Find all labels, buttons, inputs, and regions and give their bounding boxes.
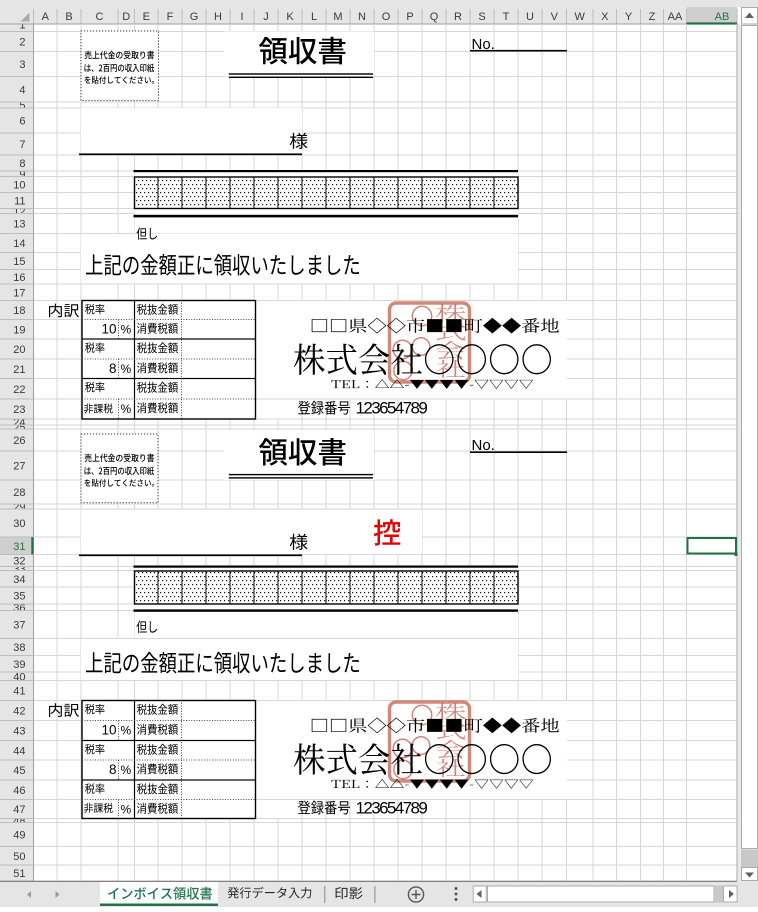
svg-text:10: 10 bbox=[101, 322, 116, 337]
svg-text:34: 34 bbox=[13, 574, 25, 586]
svg-text:%: % bbox=[121, 402, 132, 416]
svg-text:Y: Y bbox=[625, 11, 633, 23]
svg-text:U: U bbox=[526, 11, 534, 23]
svg-text:N: N bbox=[358, 11, 366, 23]
svg-text:50: 50 bbox=[13, 851, 25, 863]
svg-text:15: 15 bbox=[13, 256, 25, 268]
svg-text:O: O bbox=[382, 11, 391, 23]
svg-text:14: 14 bbox=[13, 238, 25, 250]
svg-text:30: 30 bbox=[13, 518, 25, 530]
svg-text:39: 39 bbox=[13, 659, 25, 671]
svg-text:19: 19 bbox=[13, 324, 25, 336]
svg-text:A: A bbox=[42, 11, 50, 23]
svg-text:%: % bbox=[121, 362, 132, 376]
svg-text:4: 4 bbox=[19, 84, 25, 96]
svg-text:AB: AB bbox=[715, 11, 730, 23]
svg-text:8: 8 bbox=[109, 762, 117, 777]
svg-text:42: 42 bbox=[13, 706, 25, 718]
svg-text:13: 13 bbox=[13, 219, 25, 231]
svg-text:Z: Z bbox=[649, 11, 656, 23]
svg-text:3: 3 bbox=[19, 59, 25, 71]
svg-text:8: 8 bbox=[109, 361, 117, 376]
svg-text:J: J bbox=[263, 11, 269, 23]
svg-text:31: 31 bbox=[13, 541, 25, 553]
svg-text:37: 37 bbox=[13, 620, 25, 632]
svg-text:43: 43 bbox=[13, 726, 25, 738]
svg-text:T: T bbox=[503, 11, 510, 23]
svg-text:22: 22 bbox=[13, 384, 25, 396]
svg-text:46: 46 bbox=[13, 785, 25, 797]
svg-text:49: 49 bbox=[13, 830, 25, 842]
svg-text:10: 10 bbox=[13, 180, 25, 192]
svg-text:17: 17 bbox=[13, 287, 25, 299]
svg-text:%: % bbox=[121, 803, 132, 817]
svg-text:2: 2 bbox=[19, 37, 25, 49]
svg-text:21: 21 bbox=[13, 364, 25, 376]
svg-text:6: 6 bbox=[19, 116, 25, 128]
svg-text:123654789: 123654789 bbox=[356, 399, 428, 418]
svg-text:41: 41 bbox=[13, 686, 25, 698]
svg-text:%: % bbox=[121, 763, 132, 777]
svg-text:R: R bbox=[454, 11, 462, 23]
svg-text:27: 27 bbox=[13, 461, 25, 473]
svg-text:V: V bbox=[551, 11, 559, 23]
svg-text:45: 45 bbox=[13, 765, 25, 777]
svg-text:28: 28 bbox=[13, 487, 25, 499]
svg-text:K: K bbox=[286, 11, 294, 23]
svg-text:26: 26 bbox=[13, 435, 25, 447]
svg-text:B: B bbox=[65, 11, 72, 23]
svg-text:X: X bbox=[601, 11, 609, 23]
svg-text:%: % bbox=[121, 724, 132, 738]
svg-text:H: H bbox=[214, 11, 222, 23]
svg-text:18: 18 bbox=[13, 305, 25, 317]
svg-text:E: E bbox=[143, 11, 150, 23]
svg-text:W: W bbox=[575, 11, 586, 23]
svg-text:123654789: 123654789 bbox=[356, 798, 428, 817]
svg-text:D: D bbox=[122, 11, 130, 23]
svg-text:I: I bbox=[240, 11, 243, 23]
svg-text:23: 23 bbox=[13, 404, 25, 416]
svg-text:35: 35 bbox=[13, 591, 25, 603]
svg-text:AA: AA bbox=[668, 11, 683, 23]
svg-text:%: % bbox=[121, 323, 132, 337]
svg-text:L: L bbox=[311, 11, 317, 23]
svg-text:8: 8 bbox=[19, 158, 25, 170]
svg-text:7: 7 bbox=[19, 139, 25, 151]
svg-text:F: F bbox=[167, 11, 174, 23]
svg-text:M: M bbox=[333, 11, 342, 23]
svg-text:Q: Q bbox=[430, 11, 439, 23]
svg-text:51: 51 bbox=[13, 868, 25, 880]
svg-text:16: 16 bbox=[13, 272, 25, 284]
svg-text:47: 47 bbox=[13, 804, 25, 816]
svg-text:S: S bbox=[478, 11, 485, 23]
svg-text:P: P bbox=[406, 11, 413, 23]
svg-text:C: C bbox=[96, 11, 104, 23]
svg-text:10: 10 bbox=[101, 723, 116, 738]
svg-text:32: 32 bbox=[13, 556, 25, 568]
svg-text:11: 11 bbox=[14, 196, 25, 208]
svg-text:44: 44 bbox=[13, 745, 25, 757]
svg-text:38: 38 bbox=[13, 642, 25, 654]
svg-text:G: G bbox=[190, 11, 199, 23]
svg-text:20: 20 bbox=[13, 344, 25, 356]
